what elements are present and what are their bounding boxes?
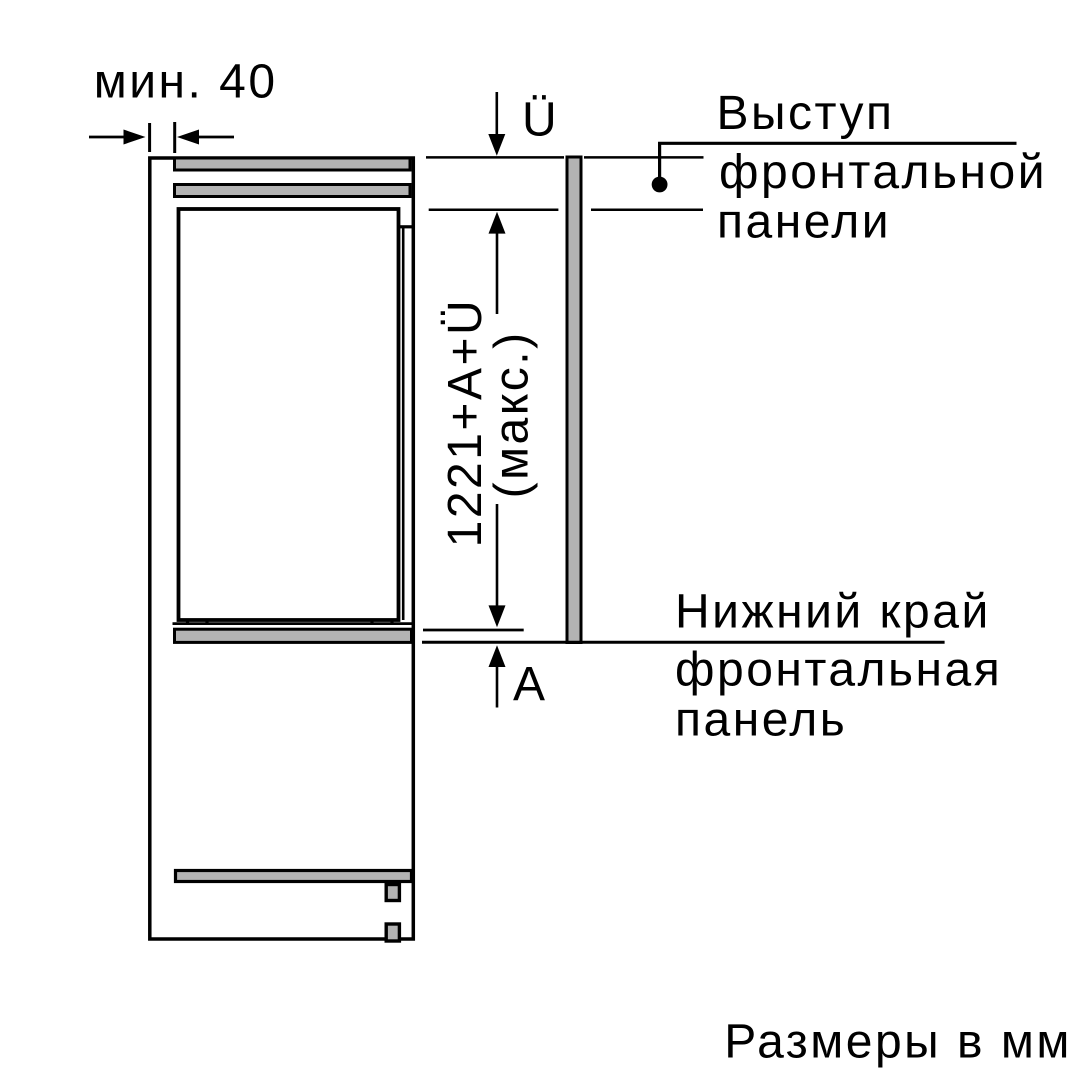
- svg-text:фронтальная: фронтальная: [675, 644, 1002, 697]
- svg-text:(макс.): (макс.): [486, 330, 539, 498]
- svg-text:панель: панель: [675, 694, 847, 747]
- svg-text:Нижний край: Нижний край: [675, 586, 991, 639]
- svg-text:фронтальной: фронтальной: [719, 146, 1047, 199]
- svg-text:Ü: Ü: [522, 94, 559, 147]
- svg-text:панели: панели: [717, 196, 891, 249]
- svg-text:Выступ: Выступ: [717, 87, 895, 140]
- svg-text:A: A: [513, 658, 548, 711]
- svg-text:Размеры в мм: Размеры в мм: [724, 1016, 1072, 1069]
- svg-text:1221+A+Ü: 1221+A+Ü: [439, 298, 492, 548]
- svg-text:мин. 40: мин. 40: [94, 56, 278, 109]
